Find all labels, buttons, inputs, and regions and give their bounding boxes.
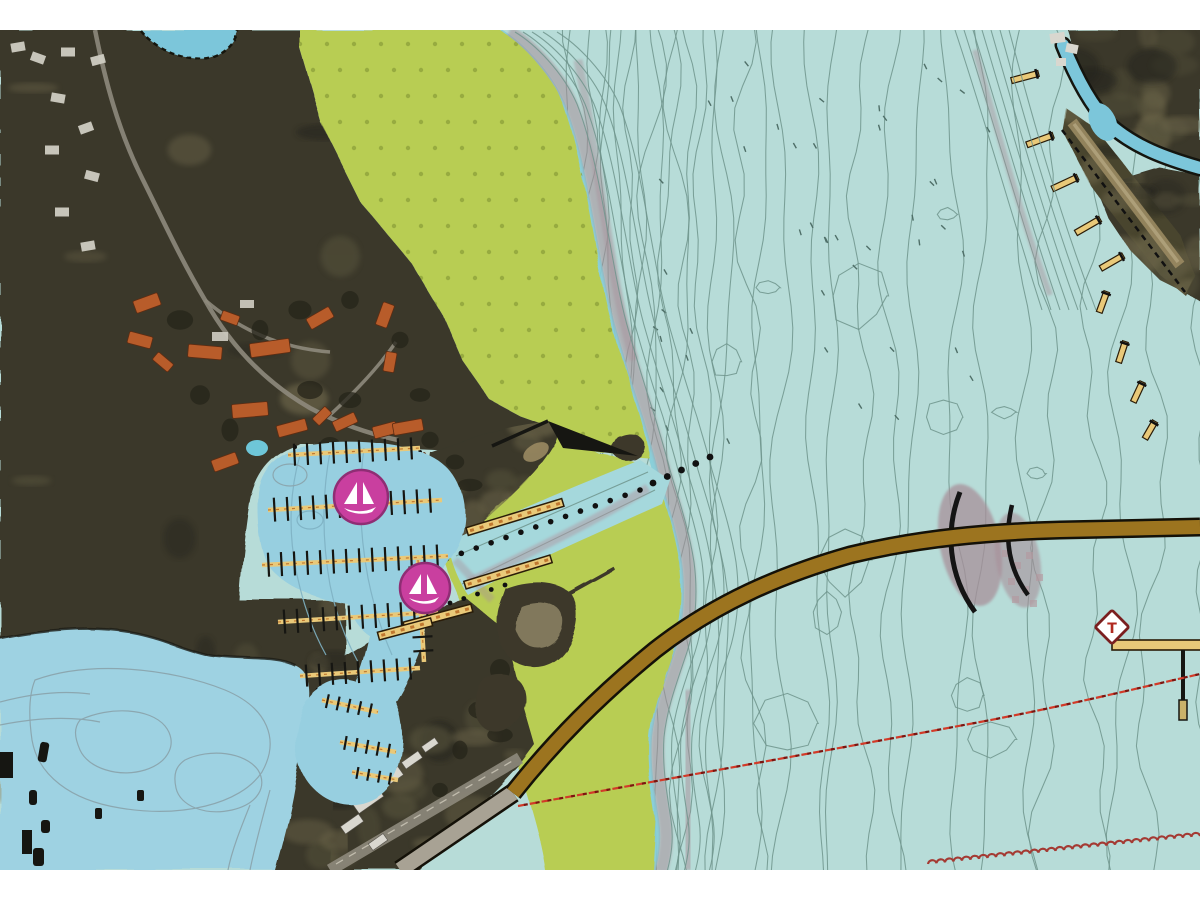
- pool: [246, 440, 268, 456]
- pile-dot: [503, 535, 509, 541]
- pile-dot: [678, 467, 685, 474]
- chartplotter-screen: T: [0, 0, 1200, 900]
- pile-dot: [692, 460, 699, 467]
- beacon-letter: T: [1107, 621, 1117, 637]
- house: [61, 48, 75, 57]
- tree: [446, 455, 464, 470]
- marina-icon[interactable]: [400, 563, 450, 613]
- tree: [421, 432, 438, 448]
- pile-dot: [707, 454, 714, 461]
- house: [45, 146, 59, 155]
- current-tick: [919, 239, 920, 245]
- pile-dot: [459, 551, 465, 557]
- pile-dot: [607, 498, 613, 504]
- tree: [288, 301, 311, 320]
- pile-dot: [593, 503, 599, 509]
- pile-dot: [533, 524, 539, 530]
- pile-dot: [650, 480, 657, 487]
- house: [55, 208, 69, 217]
- nautical-chart: T: [0, 30, 1200, 870]
- tree: [458, 479, 483, 492]
- tree: [252, 320, 269, 340]
- pile-dot: [518, 529, 524, 535]
- tree: [190, 385, 210, 405]
- pile-dot: [637, 487, 643, 493]
- tree: [167, 310, 193, 330]
- pile-dot: [473, 545, 479, 551]
- tree: [452, 741, 467, 760]
- lagoon: [0, 629, 310, 870]
- pile-dot: [448, 601, 453, 606]
- building-roof: [231, 401, 268, 418]
- marina-icon[interactable]: [334, 470, 388, 524]
- tree: [432, 783, 448, 797]
- pile-dot: [475, 592, 480, 597]
- tree: [410, 388, 430, 402]
- pile-dot: [488, 540, 494, 546]
- pile-dot: [578, 508, 584, 514]
- tree: [391, 332, 408, 348]
- pile-dot: [489, 587, 494, 592]
- pile-dot: [563, 514, 569, 520]
- tree: [339, 392, 362, 408]
- pile-dot: [461, 596, 466, 601]
- current-tick: [879, 105, 880, 111]
- tree: [341, 291, 359, 309]
- pile-dot: [664, 473, 671, 480]
- tree: [221, 418, 238, 441]
- building-roof: [187, 344, 222, 360]
- pile-dot: [548, 519, 554, 525]
- chart-canvas[interactable]: T: [0, 30, 1200, 870]
- tree: [297, 381, 323, 399]
- pile-dot: [622, 492, 628, 498]
- pile-dot: [503, 583, 508, 588]
